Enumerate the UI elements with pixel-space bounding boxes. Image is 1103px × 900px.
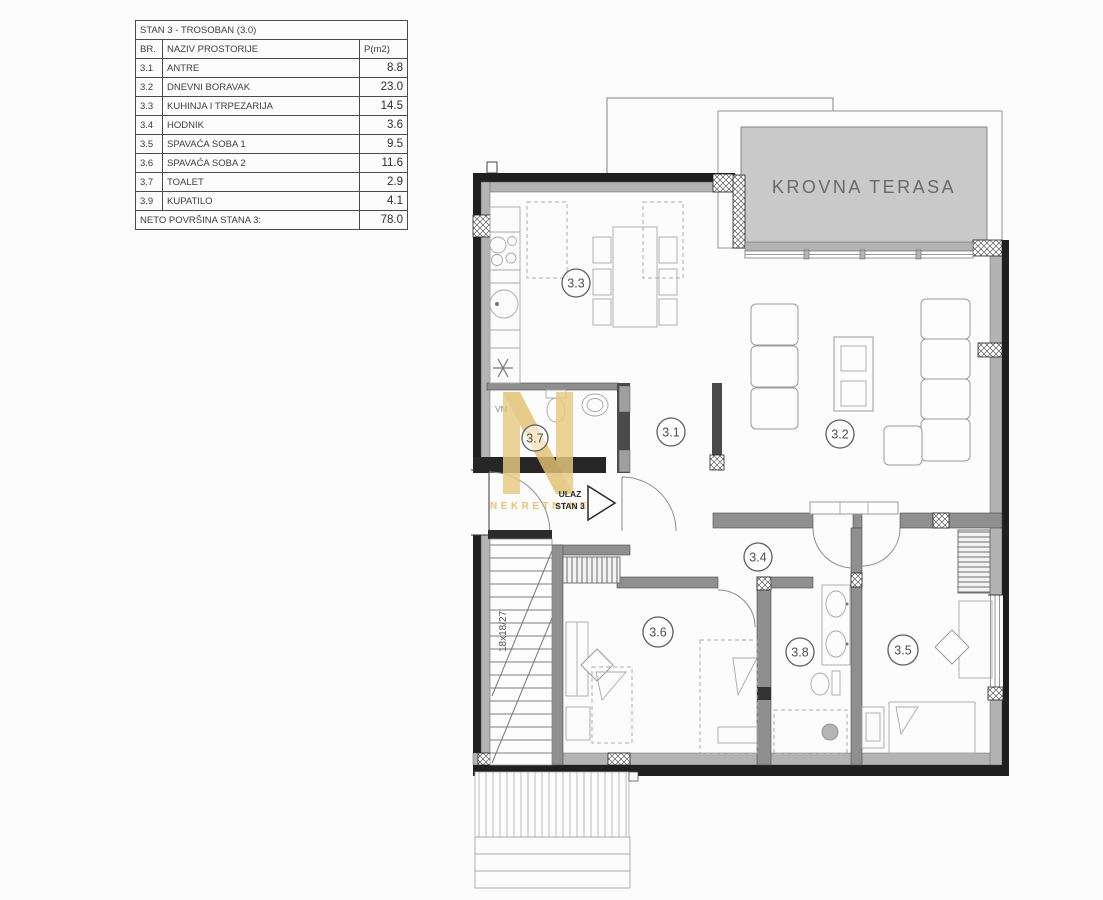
basin-icon <box>826 591 846 617</box>
svg-text:3.7: 3.7 <box>526 432 543 446</box>
svg-text:3.6: 3.6 <box>649 626 666 640</box>
room-label-3-5: 3.5 <box>888 635 918 665</box>
kitchen-sink-icon <box>490 290 518 318</box>
shower-drain-icon <box>822 724 838 740</box>
svg-text:3.2: 3.2 <box>831 428 848 442</box>
upper-cabinet-dashed <box>527 202 567 278</box>
partition-wall <box>712 383 722 455</box>
stove-icon <box>490 237 517 266</box>
wc-icon <box>811 673 829 695</box>
room-label-3-4: 3.4 <box>744 543 772 571</box>
terrace-label: KROVNA TERASA <box>772 177 956 197</box>
living-room-furniture <box>751 299 970 514</box>
nightstand <box>718 727 757 743</box>
sofa <box>751 304 798 429</box>
svg-text:3.1: 3.1 <box>662 426 679 440</box>
washbasin-icon <box>582 394 608 416</box>
nightstand <box>566 707 590 740</box>
bedroom1-window <box>988 595 1003 700</box>
bedroom1-furniture <box>862 530 992 753</box>
bed-dashed <box>700 640 757 753</box>
fridge-icon <box>493 359 513 377</box>
svg-text:3.3: 3.3 <box>567 277 584 291</box>
chair <box>935 630 969 664</box>
vanity <box>822 585 850 665</box>
floorplan-page: { "table": { "title": "STAN 3 - TROSOBAN… <box>0 0 1103 900</box>
room-label-3-7: 3.7 <box>522 425 548 451</box>
lower-terrace-steps <box>475 772 638 888</box>
stairs-dimension-label: 18x18/27 <box>498 610 509 652</box>
entrance-label-line1: ULAZ <box>559 489 582 499</box>
room-label-3-3: 3.3 <box>562 269 590 297</box>
dresser <box>810 502 898 514</box>
room-label-3-2: 3.2 <box>826 420 854 448</box>
bed <box>889 702 975 753</box>
tv-stand <box>834 337 873 411</box>
staircase: 18x18/27 <box>488 530 552 765</box>
wc-tank <box>832 671 840 695</box>
room-label-3-6: 3.6 <box>643 617 673 647</box>
chimney-square <box>487 162 497 173</box>
pillow <box>733 658 757 695</box>
bathroom-fixtures <box>774 585 850 753</box>
room-label-3-8: 3.8 <box>786 638 814 666</box>
corner-sofa <box>884 299 970 465</box>
roof-terrace: KROVNA TERASA <box>718 111 1002 248</box>
desk <box>959 601 992 678</box>
entrance-label-line2: STAN 3 <box>555 501 585 511</box>
dining-table <box>593 227 677 327</box>
basin-icon <box>826 631 846 657</box>
floor-plan: KROVNA TERASA <box>0 0 1103 900</box>
svg-text:3.8: 3.8 <box>791 646 808 660</box>
svg-text:3.4: 3.4 <box>749 551 766 565</box>
pillow <box>896 707 918 734</box>
radiator-icon <box>958 530 990 593</box>
svg-text:3.5: 3.5 <box>894 644 911 658</box>
radiator-icon <box>563 557 620 583</box>
entrance-arrow-icon <box>588 486 615 520</box>
room-label-3-1: 3.1 <box>657 418 685 446</box>
